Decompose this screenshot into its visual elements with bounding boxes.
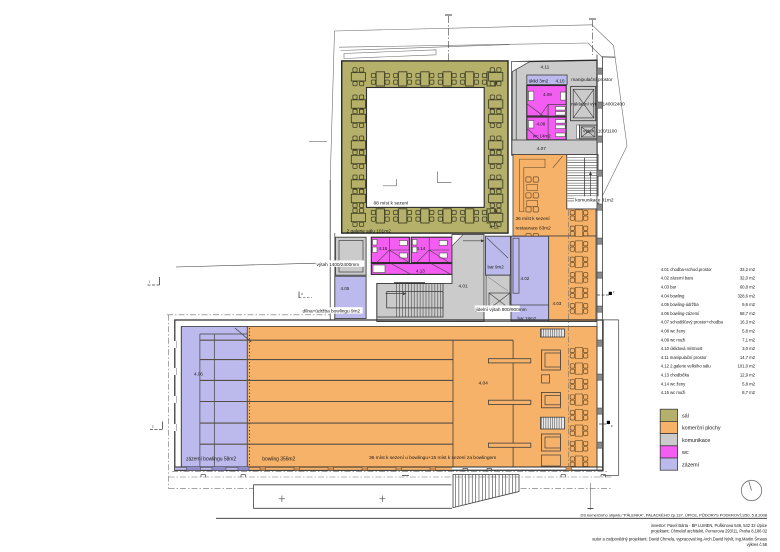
svg-text:4.11 manipulační prostor: 4.11 manipulační prostor — [661, 355, 707, 360]
svg-text:DS komerčního objektu "PÁLENKA: DS komerčního objektu "PÁLENKA", PALACKÉ… — [580, 513, 767, 518]
svg-text:4.11: 4.11 — [541, 65, 550, 71]
svg-text:12,9 m2: 12,9 m2 — [740, 373, 756, 378]
svg-text:4.07 schodišťový prostor+chodb: 4.07 schodišťový prostor+chodba — [661, 320, 724, 325]
svg-text:výtah 1400/2400mm: výtah 1400/2400mm — [317, 262, 360, 268]
svg-text:36 míst k sezení: 36 míst k sezení — [516, 216, 551, 222]
svg-text:9,6 m2: 9,6 m2 — [742, 302, 755, 307]
svg-text:4.12: 4.12 — [490, 225, 500, 231]
svg-text:58,7 m2: 58,7 m2 — [740, 311, 756, 316]
svg-text:4.06: 4.06 — [194, 371, 203, 376]
svg-text:4.09 wc muži: 4.09 wc muži — [661, 337, 686, 342]
svg-text:I: I — [149, 280, 150, 284]
svg-text:autor a zodpovědný projektant:: autor a zodpovědný projektant: David Chm… — [592, 537, 767, 542]
svg-text:restaurace 63m2: restaurace 63m2 — [516, 225, 552, 231]
svg-text:4.13 chodbička: 4.13 chodbička — [661, 373, 690, 378]
svg-text:zázemí: zázemí — [682, 462, 700, 468]
svg-text:33,2 m2: 33,2 m2 — [740, 267, 756, 272]
svg-text:4.04: 4.04 — [479, 380, 489, 386]
svg-text:manipulační prostor: manipulační prostor — [571, 77, 613, 83]
svg-text:4.10 úklidová místnost: 4.10 úklidová místnost — [661, 346, 704, 351]
svg-text:101,0 m2: 101,0 m2 — [737, 364, 755, 369]
svg-text:bowling 356m2: bowling 356m2 — [262, 457, 295, 463]
svg-text:bar 9m2: bar 9m2 — [488, 265, 505, 270]
svg-text:4.09: 4.09 — [543, 92, 552, 97]
svg-text:14,7 m2: 14,7 m2 — [740, 355, 756, 360]
svg-text:4.07: 4.07 — [537, 146, 547, 152]
svg-text:4.05: 4.05 — [341, 286, 350, 291]
svg-text:4.02 zázemí baru: 4.02 zázemí baru — [661, 276, 694, 281]
svg-text:4.15 wc muži: 4.15 wc muži — [661, 390, 686, 395]
svg-text:4.08 wc ženy: 4.08 wc ženy — [661, 329, 686, 334]
svg-text:8,7 m2: 8,7 m2 — [742, 390, 755, 395]
svg-text:16,3 m2: 16,3 m2 — [740, 320, 756, 325]
svg-text:4.03: 4.03 — [553, 301, 562, 306]
svg-text:4.12 2.galerie velkého sálu: 4.12 2.galerie velkého sálu — [661, 364, 711, 369]
svg-text:4.04 bowling: 4.04 bowling — [661, 293, 685, 298]
svg-text:5,8 m2: 5,8 m2 — [742, 329, 755, 334]
svg-text:32,0 m2: 32,0 m2 — [740, 276, 756, 281]
svg-text:4.03 bar: 4.03 bar — [661, 285, 677, 290]
svg-text:o: o — [301, 292, 303, 296]
svg-text:4.06 bowling-zázemí: 4.06 bowling-zázemí — [661, 311, 700, 316]
svg-text:4.14: 4.14 — [417, 246, 426, 251]
svg-text:5,8 m2: 5,8 m2 — [742, 381, 755, 386]
svg-text:výkres č.58: výkres č.58 — [747, 542, 768, 547]
svg-text:zázemí bowlingu 58m2: zázemí bowlingu 58m2 — [186, 457, 236, 463]
svg-text:wc: wc — [681, 450, 689, 456]
svg-text:88 míst k sezení: 88 míst k sezení — [374, 201, 409, 207]
svg-text:4.02: 4.02 — [521, 276, 530, 281]
svg-text:60,8 m2: 60,8 m2 — [740, 285, 756, 290]
svg-text:328,6 m2: 328,6 m2 — [737, 293, 755, 298]
svg-text:2 galerie sálu 101m2: 2 galerie sálu 101m2 — [347, 228, 392, 234]
svg-text:7,1 m2: 7,1 m2 — [742, 337, 755, 342]
svg-text:jídelní výtah 800/900mm: jídelní výtah 800/900mm — [475, 307, 527, 313]
svg-text:4.15: 4.15 — [379, 246, 388, 251]
svg-text:4.14 wc ženy: 4.14 wc ženy — [661, 381, 686, 386]
svg-text:výtah 1100/1100: výtah 1100/1100 — [583, 129, 617, 135]
svg-text:komunikace 31m2: komunikace 31m2 — [575, 197, 614, 203]
svg-text:4.05 bowling-údržba: 4.05 bowling-údržba — [661, 302, 699, 307]
svg-text:4.13: 4.13 — [416, 268, 425, 273]
svg-text:36 míst k sezení u bowlingu+15: 36 míst k sezení u bowlingu+15 míst k se… — [369, 455, 496, 461]
svg-text:4.01 chodba+schod.prostor: 4.01 chodba+schod.prostor — [661, 267, 713, 272]
svg-text:dílna+údržba bowlingu 9m2: dílna+údržba bowlingu 9m2 — [303, 309, 361, 315]
svg-text:4.01: 4.01 — [459, 283, 469, 289]
svg-text:4.10: 4.10 — [556, 79, 565, 84]
svg-text:komunikace: komunikace — [682, 438, 710, 444]
svg-text:sál: sál — [682, 414, 689, 420]
svg-text:komerční plochy: komerční plochy — [682, 426, 721, 432]
svg-text:3,0 m2: 3,0 m2 — [742, 346, 755, 351]
svg-text:4.08: 4.08 — [537, 122, 546, 127]
svg-text:projektant: Chmelař architekti: projektant: Chmelař architekti, Pernerov… — [651, 528, 768, 533]
svg-text:úklid 3m2: úklid 3m2 — [529, 79, 549, 84]
